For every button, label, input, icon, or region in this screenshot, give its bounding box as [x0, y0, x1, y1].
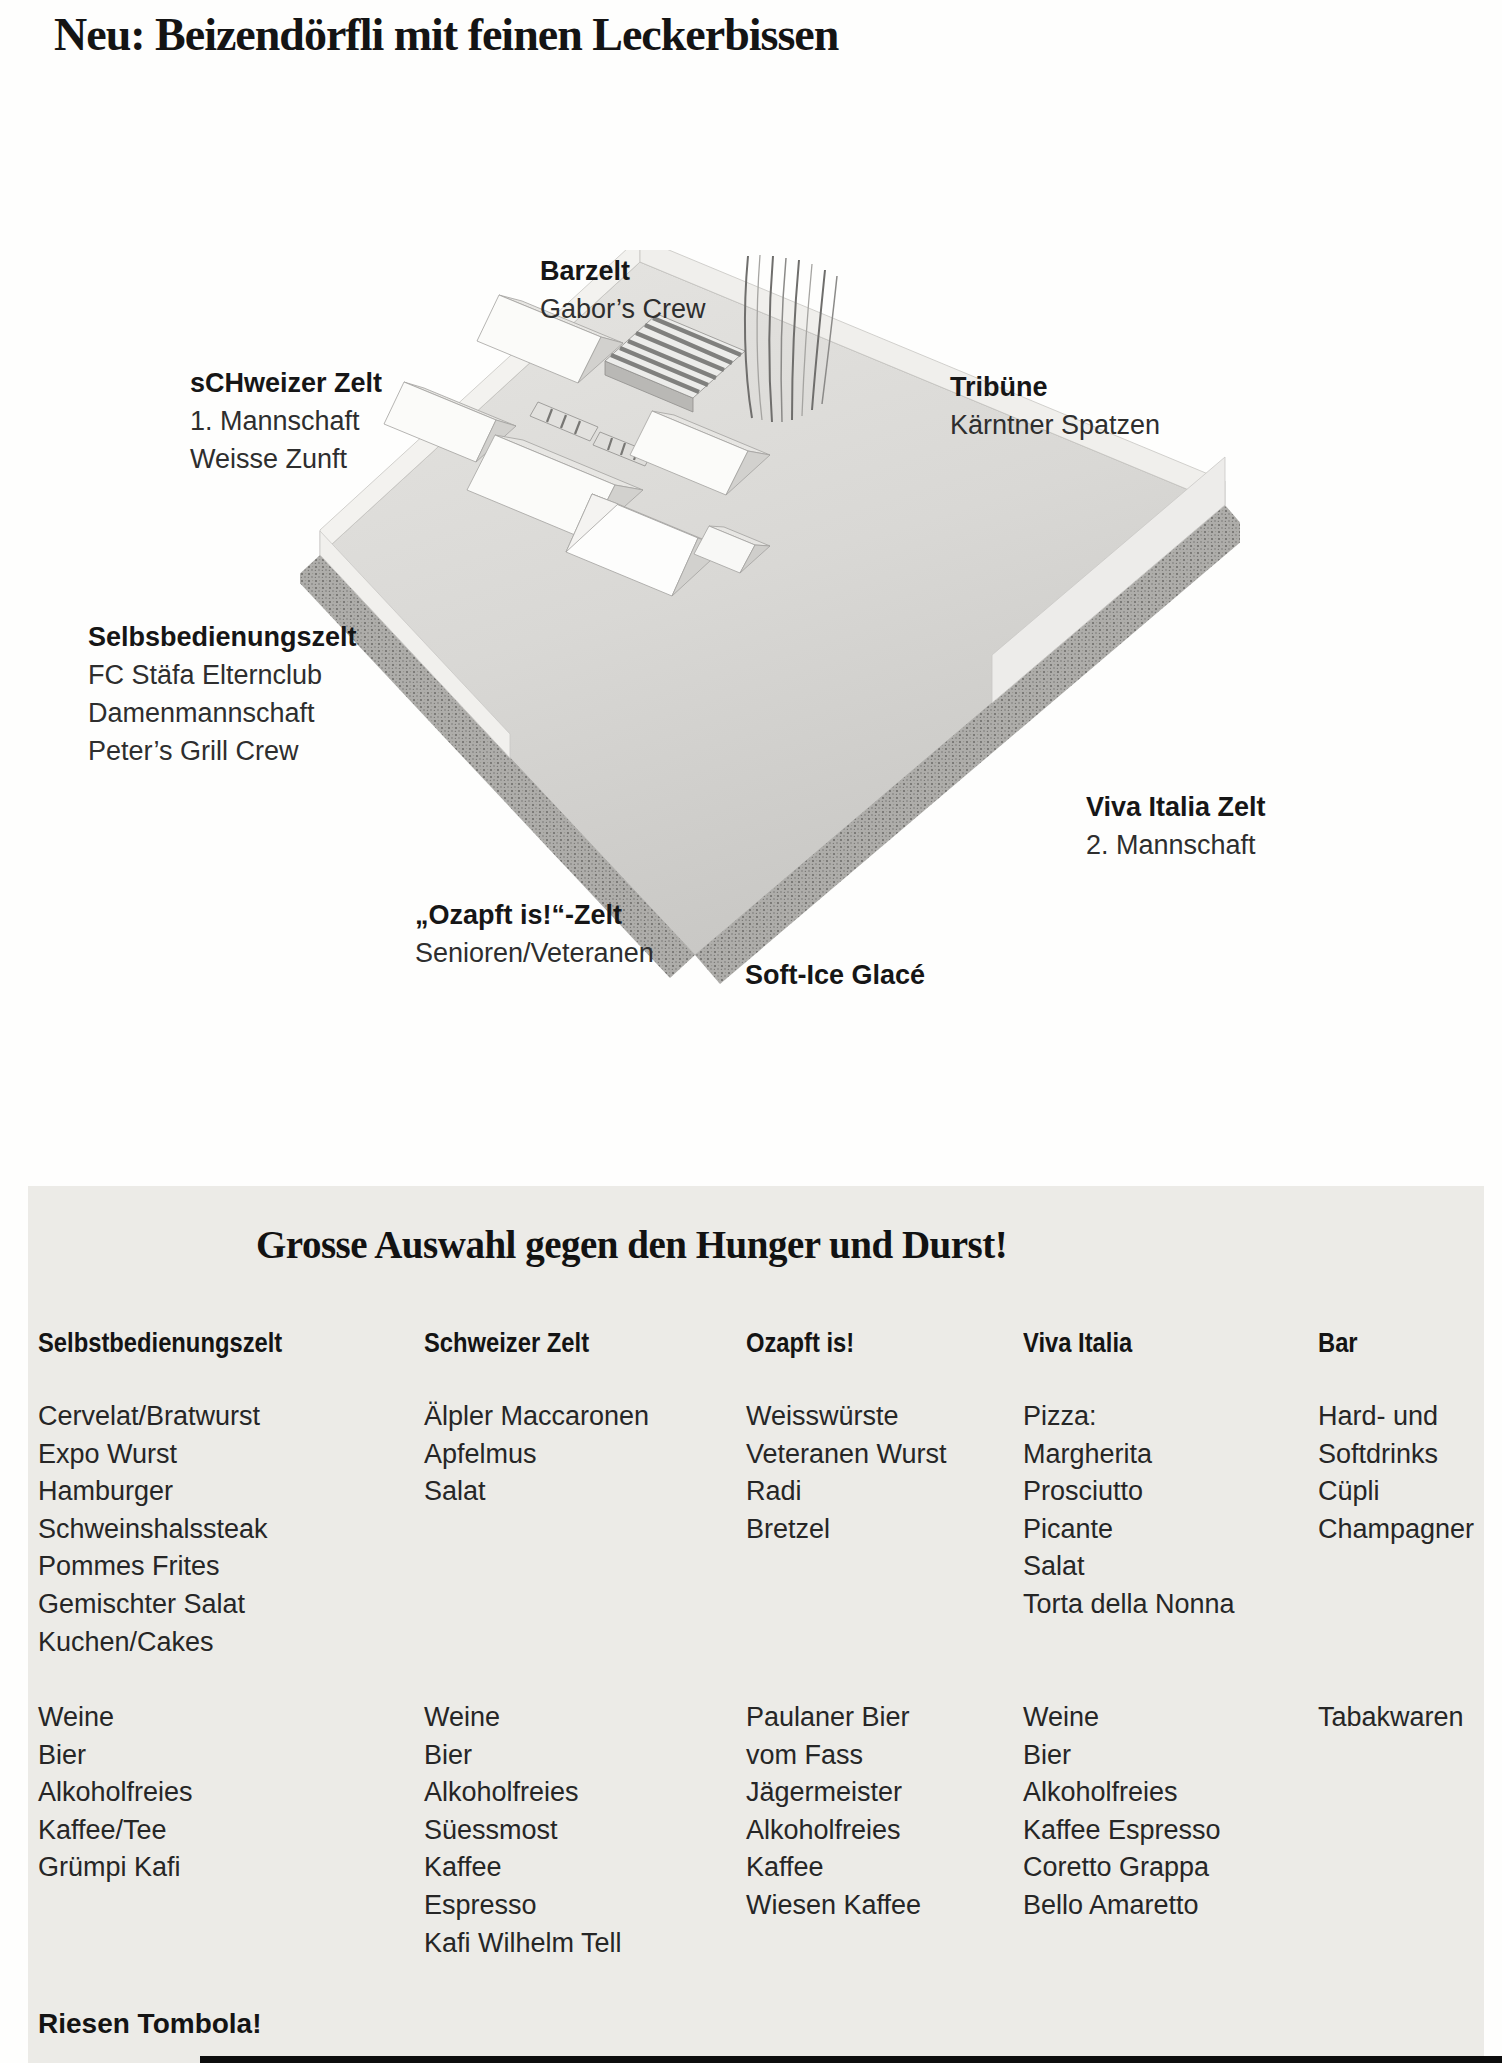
- menu-item: Bretzel: [746, 1511, 947, 1549]
- map-label-lines: 1. MannschaftWeisse Zunft: [190, 402, 382, 478]
- menu-drinks-list: WeineBierAlkoholfreiesSüessmostKaffeeEsp…: [424, 1699, 622, 1962]
- menu-item: Kuchen/Cakes: [38, 1624, 268, 1662]
- map-label-selbstbedienungszelt: Selbsbedienungszelt FC Stäfa ElternclubD…: [88, 618, 357, 770]
- menu-item: Salat: [1023, 1548, 1235, 1586]
- menu-drinks-list: WeineBierAlkoholfreiesKaffee/TeeGrümpi K…: [38, 1699, 193, 1887]
- map-label-line: Peter’s Grill Crew: [88, 732, 357, 770]
- menu-column-header: Schweizer Zelt: [424, 1328, 589, 1359]
- scan-edge-strip: [200, 2056, 1502, 2063]
- menu-item: Weine: [424, 1699, 622, 1737]
- map-label-title: Soft-Ice Glacé: [745, 956, 925, 994]
- menu-item: Apfelmus: [424, 1436, 649, 1474]
- menu-item: Alkoholfreies: [1023, 1774, 1221, 1812]
- menu-food-list: Älpler MaccaronenApfelmusSalat: [424, 1398, 649, 1511]
- menu-column-ozapft-is: Ozapft is! WeisswürsteVeteranen WurstRad…: [746, 1328, 1056, 2038]
- menu-item: Schweinshalssteak: [38, 1511, 268, 1549]
- map-label-title: „Ozapft is!“-Zelt: [415, 896, 654, 934]
- menu-drinks-list: WeineBierAlkoholfreiesKaffee EspressoCor…: [1023, 1699, 1221, 1925]
- map-label-lines: 2. Mannschaft: [1086, 826, 1266, 864]
- menu-item: Tabakwaren: [1318, 1699, 1464, 1737]
- menu-item: Weine: [38, 1699, 193, 1737]
- menu-footer-riesen-tombola: Riesen Tombola!: [38, 2008, 262, 2040]
- map-label-line: 2. Mannschaft: [1086, 826, 1266, 864]
- menu-food-list: Cervelat/BratwurstExpo WurstHamburgerSch…: [38, 1398, 268, 1661]
- menu-column-selbstbedienungszelt: Selbstbedienungszelt Cervelat/BratwurstE…: [38, 1328, 348, 2038]
- menu-item: Hard- und: [1318, 1398, 1474, 1436]
- map-label-schweizer-zelt: sCHweizer Zelt 1. MannschaftWeisse Zunft: [190, 364, 382, 478]
- map-label-ozapft-is-zelt: „Ozapft is!“-Zelt Senioren/Veteranen: [415, 896, 654, 972]
- menu-drinks-list: Paulaner Biervom FassJägermeisterAlkohol…: [746, 1699, 921, 1925]
- map-label-soft-ice-glace: Soft-Ice Glacé: [745, 956, 925, 994]
- menu-item: Jägermeister: [746, 1774, 921, 1812]
- map-label-title: Selbsbedienungszelt: [88, 618, 357, 656]
- menu-item: Paulaner Bier: [746, 1699, 921, 1737]
- menu-item: Bier: [1023, 1737, 1221, 1775]
- map-label-lines: FC Stäfa ElternclubDamenmannschaftPeter’…: [88, 656, 357, 770]
- menu-item: Süessmost: [424, 1812, 622, 1850]
- scanned-flyer-page: Neu: Beizendörfli mit feinen Leckerbisse…: [0, 0, 1502, 2063]
- menu-item: Softdrinks: [1318, 1436, 1474, 1474]
- menu-item: Cervelat/Bratwurst: [38, 1398, 268, 1436]
- menu-item: Alkoholfreies: [746, 1812, 921, 1850]
- menu-item: Bier: [38, 1737, 193, 1775]
- menu-column-header: Selbstbedienungszelt: [38, 1328, 282, 1359]
- map-label-line: Kärntner Spatzen: [950, 406, 1160, 444]
- map-label-line: Damenmannschaft: [88, 694, 357, 732]
- menu-item: Radi: [746, 1473, 947, 1511]
- map-label-lines: Senioren/Veteranen: [415, 934, 654, 972]
- menu-item: Cüpli: [1318, 1473, 1474, 1511]
- menu-item: vom Fass: [746, 1737, 921, 1775]
- map-label-title: Viva Italia Zelt: [1086, 788, 1266, 826]
- menu-item: Espresso: [424, 1887, 622, 1925]
- menu-item: Weine: [1023, 1699, 1221, 1737]
- menu-item: Gemischter Salat: [38, 1586, 268, 1624]
- menu-item: Alkoholfreies: [424, 1774, 622, 1812]
- menu-column-header: Viva Italia: [1023, 1328, 1132, 1359]
- menu-item: Hamburger: [38, 1473, 268, 1511]
- menu-drinks-list: Tabakwaren: [1318, 1699, 1464, 1737]
- menu-item: Kafi Wilhelm Tell: [424, 1925, 622, 1963]
- menu-item: Kaffee: [424, 1849, 622, 1887]
- menu-column-schweizer-zelt: Schweizer Zelt Älpler MaccaronenApfelmus…: [424, 1328, 734, 2038]
- map-label-title: Barzelt: [540, 252, 706, 290]
- menu-item: Grümpi Kafi: [38, 1849, 193, 1887]
- menu-item: Coretto Grappa: [1023, 1849, 1221, 1887]
- map-label-line: 1. Mannschaft: [190, 402, 382, 440]
- menu-item: Weisswürste: [746, 1398, 947, 1436]
- menu-item: Picante: [1023, 1511, 1235, 1549]
- menu-item: Bello Amaretto: [1023, 1887, 1221, 1925]
- menu-food-list: Pizza:MargheritaProsciuttoPicanteSalatTo…: [1023, 1398, 1235, 1624]
- menu-item: Veteranen Wurst: [746, 1436, 947, 1474]
- menu-item: Margherita: [1023, 1436, 1235, 1474]
- map-label-lines: Kärntner Spatzen: [950, 406, 1160, 444]
- map-label-line: Gabor’s Crew: [540, 290, 706, 328]
- menu-item: Kaffee: [746, 1849, 921, 1887]
- menu-item: Kaffee/Tee: [38, 1812, 193, 1850]
- menu-food-list: Hard- undSoftdrinksCüpliChampagner: [1318, 1398, 1474, 1548]
- menu-item: Pizza:: [1023, 1398, 1235, 1436]
- map-label-tribuene: Tribüne Kärntner Spatzen: [950, 368, 1160, 444]
- map-label-title: Tribüne: [950, 368, 1160, 406]
- page-title: Neu: Beizendörfli mit feinen Leckerbisse…: [54, 8, 838, 61]
- map-label-barzelt: Barzelt Gabor’s Crew: [540, 252, 706, 328]
- menu-item: Älpler Maccaronen: [424, 1398, 649, 1436]
- menu-item: Torta della Nonna: [1023, 1586, 1235, 1624]
- menu-column-header: Bar: [1318, 1328, 1358, 1359]
- menu-item: Bier: [424, 1737, 622, 1775]
- menu-column-bar: Bar Hard- undSoftdrinksCüpliChampagner T…: [1318, 1328, 1502, 2038]
- menu-item: Champagner: [1318, 1511, 1474, 1549]
- menu-item: Prosciutto: [1023, 1473, 1235, 1511]
- menu-item: Salat: [424, 1473, 649, 1511]
- menu-item: Alkoholfreies: [38, 1774, 193, 1812]
- menu-column-header: Ozapft is!: [746, 1328, 854, 1359]
- menu-item: Pommes Frites: [38, 1548, 268, 1586]
- map-label-viva-italia-zelt: Viva Italia Zelt 2. Mannschaft: [1086, 788, 1266, 864]
- map-label-line: Senioren/Veteranen: [415, 934, 654, 972]
- map-label-line: Weisse Zunft: [190, 440, 382, 478]
- map-label-title: sCHweizer Zelt: [190, 364, 382, 402]
- menu-item: Expo Wurst: [38, 1436, 268, 1474]
- menu-column-viva-italia: Viva Italia Pizza:MargheritaProsciuttoPi…: [1023, 1328, 1333, 2038]
- menu-item: Wiesen Kaffee: [746, 1887, 921, 1925]
- menu-food-list: WeisswürsteVeteranen WurstRadiBretzel: [746, 1398, 947, 1548]
- menu-item: Kaffee Espresso: [1023, 1812, 1221, 1850]
- menu-panel: Grosse Auswahl gegen den Hunger und Durs…: [28, 1186, 1484, 2063]
- map-label-lines: Gabor’s Crew: [540, 290, 706, 328]
- menu-heading: Grosse Auswahl gegen den Hunger und Durs…: [256, 1222, 1007, 1267]
- map-label-line: FC Stäfa Elternclub: [88, 656, 357, 694]
